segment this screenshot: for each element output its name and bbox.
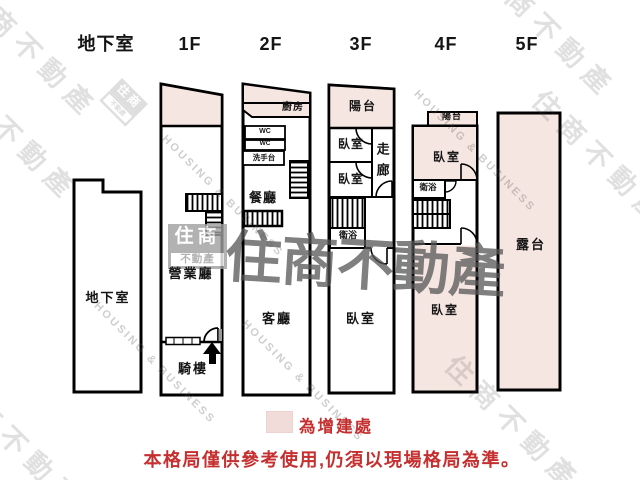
room-label-bedroom1-4f: 臥室 [433, 151, 461, 164]
room-label-kitchen-2f: 廚房 [282, 103, 304, 114]
room-label-bathroom-3f: 衛浴 [339, 231, 357, 240]
floor-header-3f: 3F [349, 35, 372, 54]
disclaimer-text: 本格局僅供參考使用,仍須以現場格局為準。 [144, 446, 521, 472]
room-label-bedroom2-3f: 臥室 [338, 173, 364, 186]
brand-watermark-text: 住商不動產 [223, 211, 507, 310]
room-label-bedroom3-3f: 臥室 [346, 312, 376, 326]
room-label-corridor-3f: 走廊 [375, 142, 389, 184]
floor-header-1f: 1F [178, 35, 201, 54]
room-label-bathroom-4f: 衛浴 [419, 183, 436, 192]
room-label-bedroom1-3f: 臥室 [338, 138, 364, 151]
brand-logo-top: 住商 [168, 224, 227, 250]
room-label-basement: 地下室 [85, 291, 130, 305]
brand-logo: 住商 不動產 [168, 224, 227, 269]
floor-header-2f: 2F [259, 35, 282, 54]
room-label-hall-1f: 營業廳 [168, 267, 213, 281]
room-label-washbasin-2f: 洗手台 [253, 154, 276, 162]
legend-addition-swatch [266, 411, 293, 433]
floor-header-basement: 地下室 [78, 35, 135, 54]
floor-header-5f: 5F [515, 35, 538, 54]
room-label-bedroom2-4f: 臥室 [431, 304, 459, 317]
room-label-arcade-1f: 騎樓 [178, 362, 208, 376]
room-label-wc1-2f: WC [259, 128, 271, 135]
room-label-terrace-5f: 露台 [516, 238, 546, 252]
room-label-dining-2f: 餐廳 [249, 191, 277, 205]
room-label-living-2f: 客廳 [262, 312, 292, 326]
legend-label: 為增建處 [299, 413, 373, 437]
floor-plan-image: 住商不動產 住商不動產 住商不動產 住商不動產 住商不動產 住商不動產 HOUS… [0, 0, 640, 480]
room-label-balcony-4f: 陽台 [442, 112, 462, 121]
room-label-wc2-2f: WC [260, 141, 271, 148]
floor-header-4f: 4F [434, 35, 457, 54]
room-label-balcony-3f: 陽台 [349, 100, 377, 113]
stairs-up-2f [290, 161, 308, 198]
plan-basement [74, 180, 141, 392]
